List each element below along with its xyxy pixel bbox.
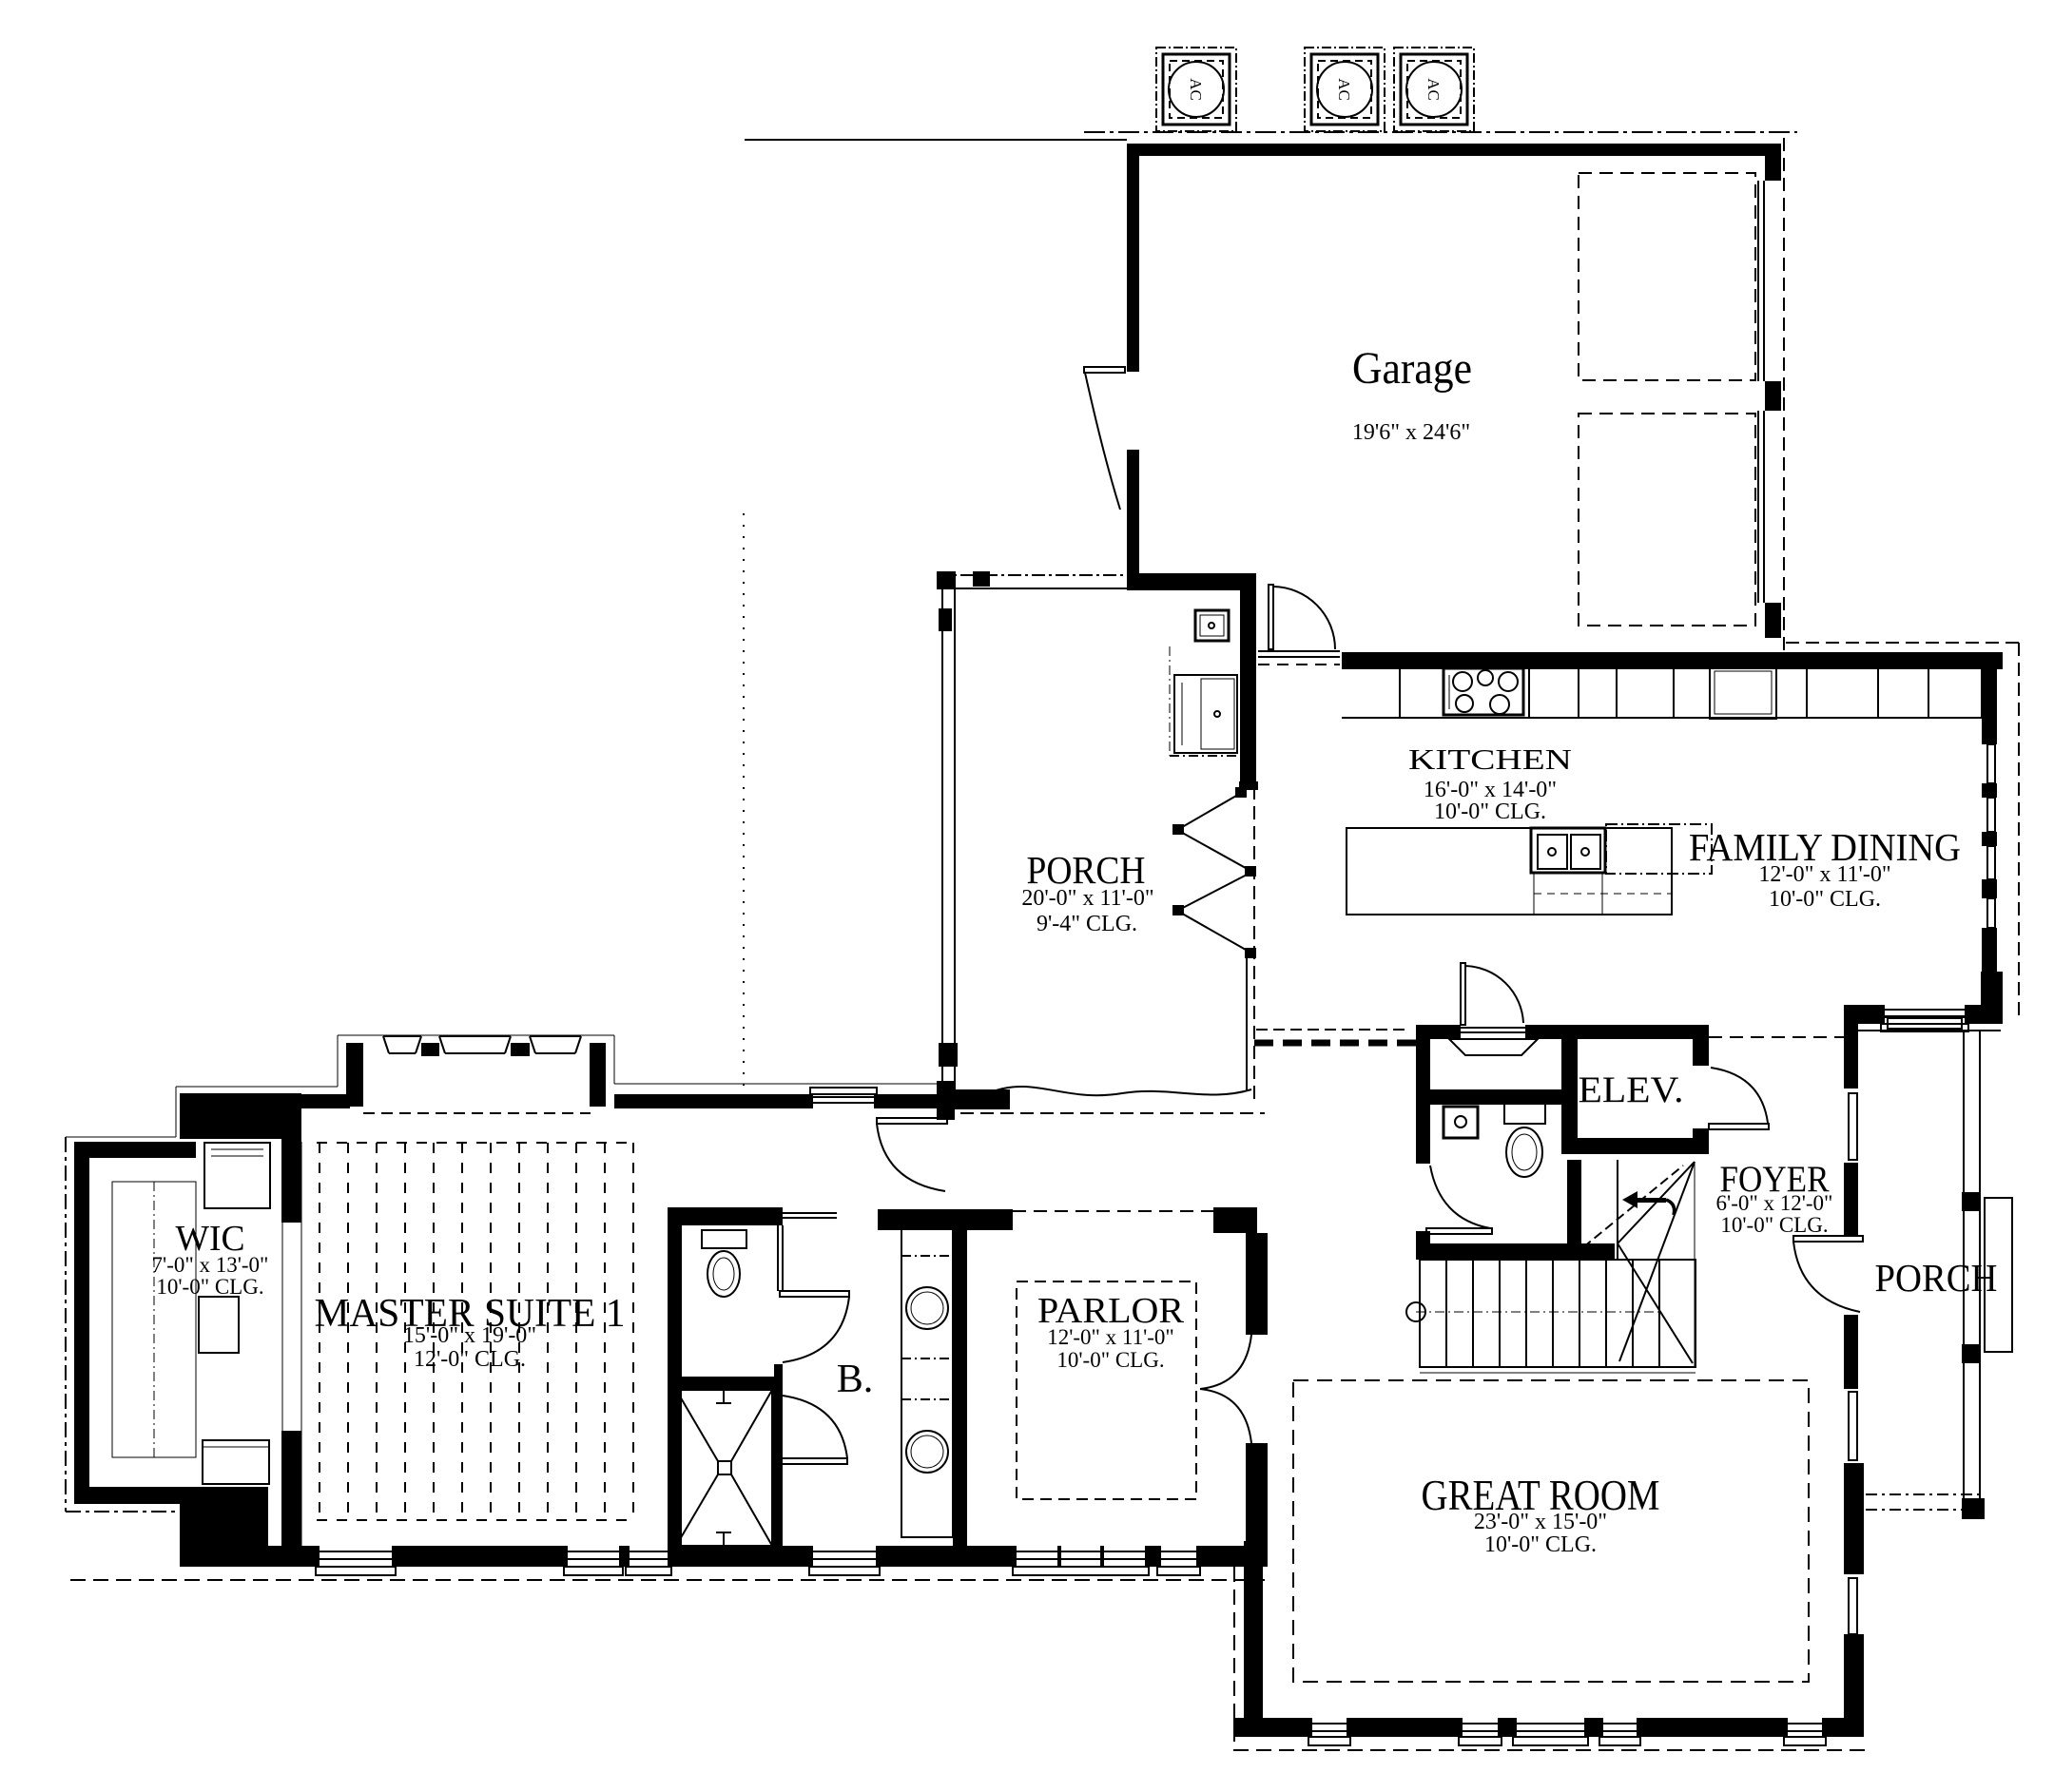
svg-text:10'-0" CLG.: 10'-0" CLG. [1434,800,1546,824]
svg-text:19'6" x 24'6": 19'6" x 24'6" [1352,420,1470,445]
svg-text:6'-0" x 12'-0": 6'-0" x 12'-0" [1716,1191,1833,1215]
svg-text:12'-0" x 11'-0": 12'-0" x 11'-0" [1758,862,1890,887]
svg-text:20'-0" x 11'-0": 20'-0" x 11'-0" [1021,886,1153,911]
svg-text:12'-0" CLG.: 12'-0" CLG. [414,1347,526,1372]
svg-text:10'-0" CLG.: 10'-0" CLG. [1056,1348,1164,1372]
svg-text:10'-0" CLG.: 10'-0" CLG. [156,1275,263,1299]
svg-text:Garage: Garage [1352,343,1472,394]
svg-text:AC: AC [1187,78,1205,101]
svg-text:12'-0" x 11'-0": 12'-0" x 11'-0" [1047,1325,1174,1349]
svg-text:10'-0" CLG.: 10'-0" CLG. [1484,1532,1597,1557]
svg-text:9'-4" CLG.: 9'-4" CLG. [1037,912,1137,936]
svg-text:23'-0" x 15'-0": 23'-0" x 15'-0" [1474,1510,1607,1534]
svg-text:7'-0" x 13'-0": 7'-0" x 13'-0" [152,1253,269,1277]
svg-text:AC: AC [1424,78,1443,101]
svg-text:KITCHEN: KITCHEN [1408,742,1572,776]
svg-text:AC: AC [1335,78,1353,101]
svg-text:10'-0" CLG.: 10'-0" CLG. [1769,887,1881,912]
svg-text:PORCH: PORCH [1875,1256,1998,1300]
svg-text:ELEV.: ELEV. [1579,1069,1684,1110]
svg-text:B.: B. [837,1358,874,1401]
svg-text:15'-0" x 19'-0": 15'-0" x 19'-0" [403,1323,536,1348]
svg-text:10'-0" CLG.: 10'-0" CLG. [1720,1213,1828,1237]
